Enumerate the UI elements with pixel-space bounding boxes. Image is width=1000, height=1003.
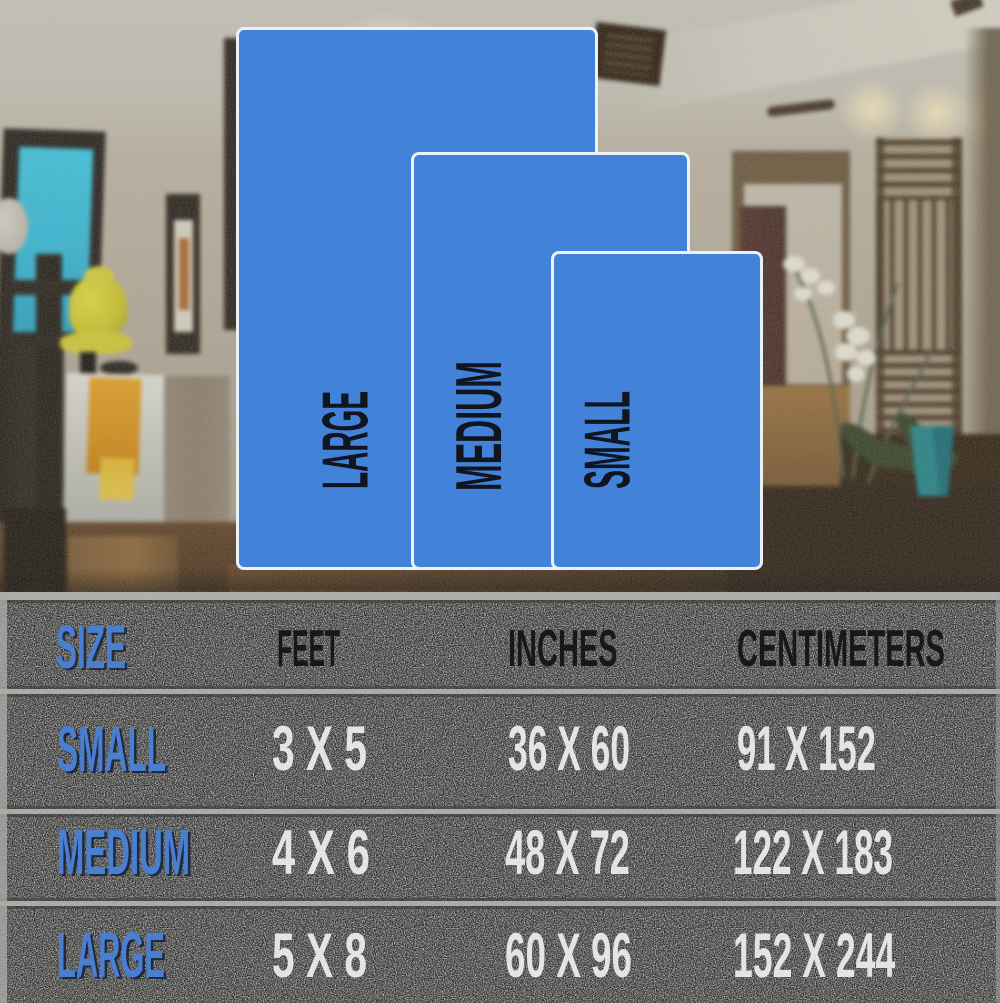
svg-text:152 X 244: 152 X 244 <box>733 920 896 990</box>
svg-text:48 X 72: 48 X 72 <box>505 816 630 887</box>
svg-text:SIZE: SIZE <box>56 614 126 682</box>
svg-text:60 X 96: 60 X 96 <box>505 920 632 991</box>
svg-text:5 X 8: 5 X 8 <box>272 921 367 991</box>
svg-text:91 X 152: 91 X 152 <box>737 713 876 784</box>
svg-text:SMALL: SMALL <box>57 713 166 785</box>
svg-text:FEET: FEET <box>277 619 340 678</box>
svg-text:MEDIUM: MEDIUM <box>57 816 190 888</box>
svg-text:MEDIUM: MEDIUM <box>443 361 515 491</box>
svg-text:LARGE: LARGE <box>57 920 165 991</box>
svg-text:LARGE: LARGE <box>309 391 382 489</box>
svg-text:INCHES: INCHES <box>508 619 618 677</box>
svg-text:SMALL: SMALL <box>571 391 644 489</box>
svg-text:36 X 60: 36 X 60 <box>508 713 630 783</box>
svg-text:4 X 6: 4 X 6 <box>272 819 370 888</box>
svg-text:122 X 183: 122 X 183 <box>733 817 893 887</box>
svg-text:CENTIMETERS: CENTIMETERS <box>737 619 945 677</box>
svg-text:3 X 5: 3 X 5 <box>272 714 367 784</box>
